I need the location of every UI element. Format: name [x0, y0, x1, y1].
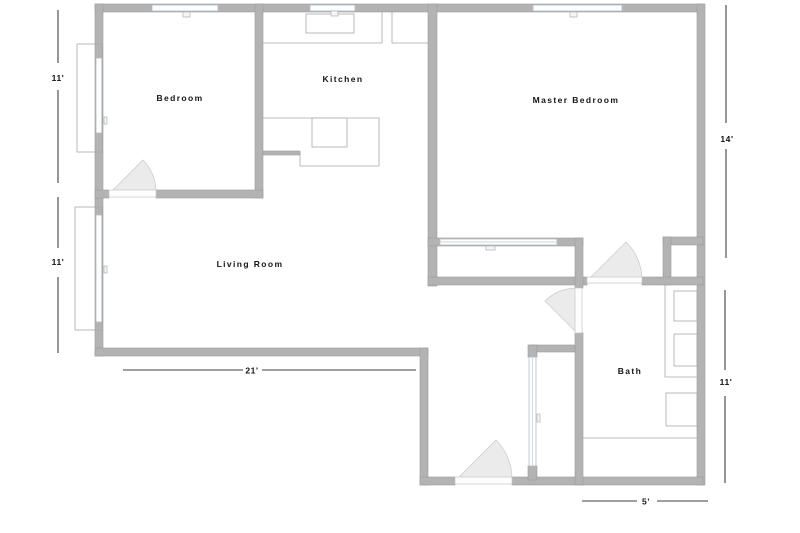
- wall-bedroom-bottom: [156, 190, 263, 198]
- bedroom-door-swing: [110, 160, 156, 193]
- wall-bath-top-right: [642, 277, 703, 285]
- wall-bedroom-right: [255, 4, 263, 198]
- wall-bath-west-upper: [575, 238, 583, 288]
- window-latch-icon: [183, 12, 190, 17]
- wall-bath-west-lower: [575, 333, 583, 485]
- wall-slider-stub-bottom: [528, 466, 537, 480]
- window-handle-icon: [104, 266, 107, 273]
- living-room-left-window: [96, 215, 102, 322]
- window-handle-icon: [104, 117, 107, 124]
- kitchen-fixtures: [263, 11, 428, 166]
- window-latch-icon: [486, 246, 495, 250]
- floor-plan-page: 11' 11' 14' 11' 21' 5' Bedroom Kitchen M…: [0, 0, 800, 533]
- room-labels: Bedroom Kitchen Master Bedroom Living Ro…: [156, 74, 642, 376]
- bath-west-door: [575, 288, 582, 333]
- wall-outer-bottom-right: [512, 477, 703, 485]
- bath-fixtures: [583, 285, 697, 438]
- wall-bedroom-bottom-stub: [95, 190, 109, 198]
- doors: [109, 160, 642, 484]
- wall-slider-stub-top: [528, 345, 537, 357]
- wall-bath-top-left: [428, 277, 587, 285]
- bedroom-left-window: [96, 58, 102, 133]
- entry-door-swing: [457, 440, 512, 479]
- kitchen-sink: [306, 14, 354, 33]
- faucet-icon: [331, 11, 338, 16]
- room-label-master-bedroom: Master Bedroom: [533, 95, 620, 105]
- toilet: [666, 393, 697, 426]
- bedroom-top-window: [152, 5, 218, 11]
- wall-living-room-bottom: [95, 348, 428, 356]
- room-label-living-room: Living Room: [217, 259, 284, 269]
- wall-outer-bottom-left: [420, 477, 455, 485]
- kitchen-counter-wall-stub: [263, 151, 300, 155]
- wall-entry-step: [420, 348, 428, 485]
- walls: [95, 4, 705, 485]
- dim-label-bottom-right: 5': [642, 497, 650, 507]
- window-latch-icon: [570, 12, 577, 17]
- dim-label-left-upper: 11': [52, 73, 65, 83]
- floor-plan-canvas: 11' 11' 14' 11' 21' 5' Bedroom Kitchen M…: [0, 0, 800, 533]
- door-handle-icon: [537, 414, 540, 422]
- bath-hall-door: [587, 277, 642, 283]
- room-label-bedroom: Bedroom: [156, 93, 203, 103]
- room-label-kitchen: Kitchen: [323, 74, 364, 84]
- bath-sink-2: [674, 334, 697, 366]
- entry-door: [455, 477, 512, 484]
- kitchen-counter-top-right: [392, 12, 428, 43]
- bedroom-door: [109, 190, 156, 197]
- room-label-bath: Bath: [618, 366, 643, 376]
- kitchen-top-window: [310, 5, 355, 11]
- dim-label-bottom-left: 21': [245, 366, 258, 376]
- stove: [312, 118, 347, 147]
- master-top-window: [533, 5, 622, 11]
- bath-vanity-counter: [665, 285, 697, 377]
- dim-label-right-lower: 11': [720, 377, 733, 387]
- dim-label-right-upper: 14': [720, 134, 733, 144]
- dim-label-left-lower: 11': [52, 257, 65, 267]
- bath-hall-door-swing: [589, 242, 642, 279]
- bath-west-door-swing: [545, 288, 577, 333]
- bath-sink-1: [674, 291, 697, 321]
